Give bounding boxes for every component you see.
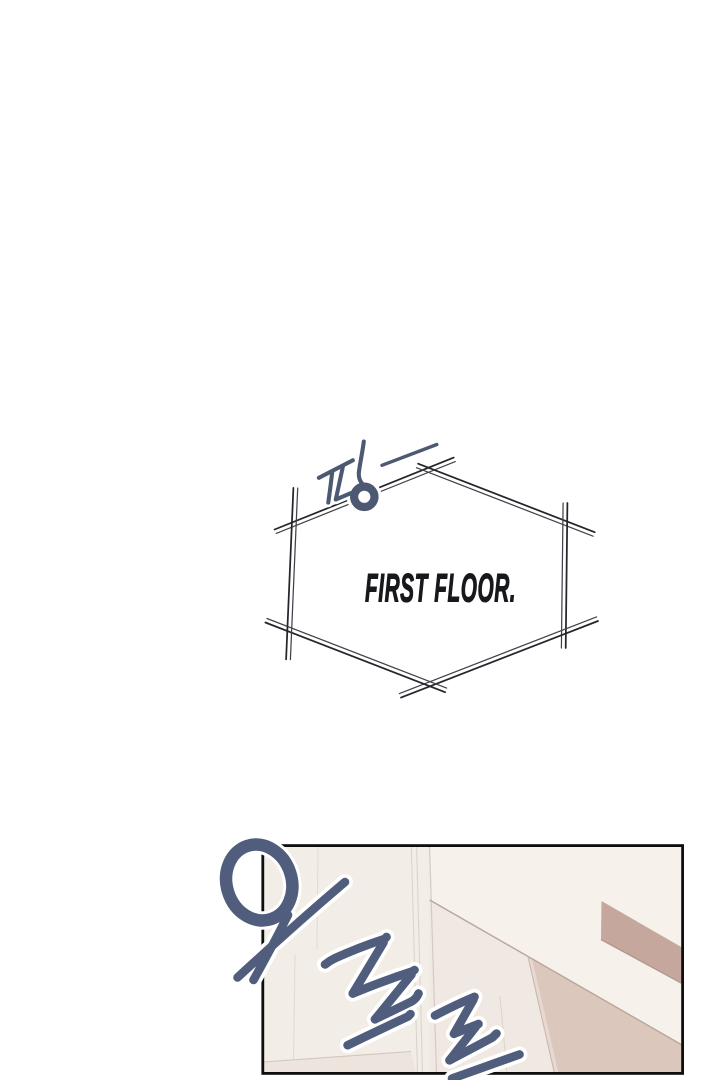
svg-text:FIRST FLOOR.: FIRST FLOOR. bbox=[365, 565, 516, 610]
